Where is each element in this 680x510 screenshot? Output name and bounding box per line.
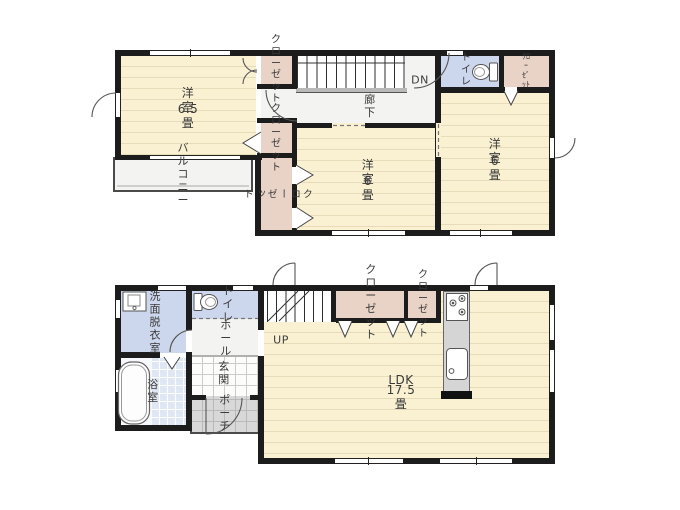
stairs-down-label: DN xyxy=(411,75,429,88)
casement-window-arc xyxy=(273,263,295,285)
washbasin-icon xyxy=(123,292,146,311)
room-size-label: 6.5畳 xyxy=(178,102,199,130)
door-arc xyxy=(170,330,192,352)
door-arc-set xyxy=(92,53,575,434)
bath-fold-door xyxy=(164,357,180,369)
closet-label: クロー ゼット xyxy=(271,35,281,106)
bathtub-icon xyxy=(119,362,150,424)
closet-label: クロー ゼット xyxy=(418,270,428,341)
toilet-label: トイレ xyxy=(461,52,471,87)
closet-label: クローゼット xyxy=(365,264,377,342)
casement-window-arc xyxy=(475,263,497,285)
stove-icon xyxy=(447,294,468,321)
entrance-label: 玄関 xyxy=(218,361,230,387)
hallway-label: 廊下 xyxy=(364,94,376,120)
porch-label: ポーチ xyxy=(219,395,231,434)
closet-label: クローゼット xyxy=(241,189,312,200)
balcony-label: バルコニー xyxy=(178,143,191,208)
washroom-label: 洗面脱衣室 xyxy=(150,291,161,356)
bifold-door xyxy=(243,132,261,154)
toilet-icon xyxy=(194,294,218,311)
bifold-door xyxy=(296,165,313,185)
bifold-door xyxy=(386,321,400,337)
stairs-up-label: UP xyxy=(273,335,289,348)
room-size-label: 6畳 xyxy=(362,174,375,202)
toilet-icon xyxy=(473,63,498,81)
casement-window-arc xyxy=(555,138,575,158)
bifold-door xyxy=(296,207,313,229)
closet-label: ｸﾛｰｾﾞｯﾄ xyxy=(522,52,530,90)
kitchen-sink-icon xyxy=(447,349,468,380)
ldk-size-label: 17.5畳 xyxy=(387,383,416,411)
stair-diagonal xyxy=(268,291,309,321)
bifold-door-set xyxy=(164,91,518,369)
casement-window-arc xyxy=(92,93,116,117)
symbols-overlay xyxy=(0,0,680,510)
room-size-label: 6畳 xyxy=(489,154,502,182)
bath-label: 浴室 xyxy=(147,379,159,405)
hall-label: ホール xyxy=(220,320,232,359)
bifold-door xyxy=(404,321,418,337)
bifold-door xyxy=(338,321,352,337)
floor-plan: 洋室 6.5畳 バルコニー クロー ゼット クロー ゼット クローゼット DN … xyxy=(0,0,680,510)
bifold-door xyxy=(504,91,518,105)
closet-label: クロー ゼット xyxy=(271,104,281,175)
